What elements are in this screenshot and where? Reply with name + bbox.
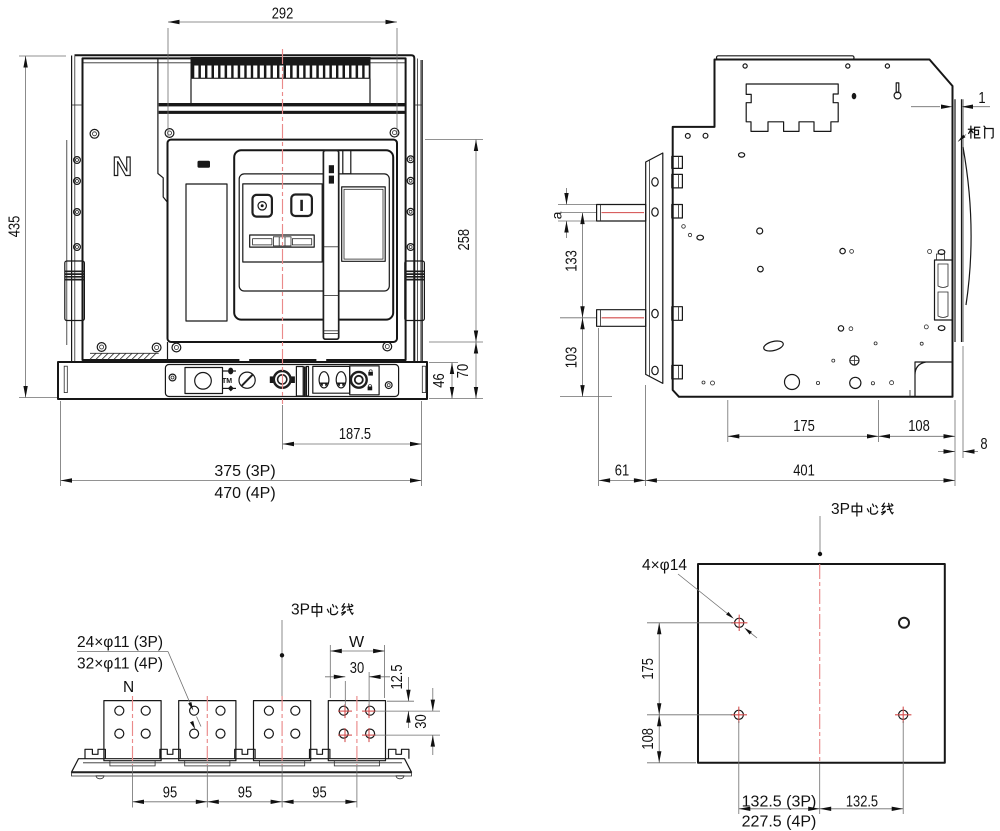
svg-text:375 (3P): 375 (3P) <box>214 463 275 480</box>
svg-text:12.5: 12.5 <box>389 664 406 689</box>
svg-text:95: 95 <box>312 784 326 801</box>
svg-text:TM: TM <box>222 378 232 385</box>
svg-text:187.5: 187.5 <box>339 426 371 443</box>
svg-text:N: N <box>113 152 133 182</box>
svg-text:103: 103 <box>564 347 581 369</box>
svg-text:95: 95 <box>163 784 177 801</box>
svg-text:30: 30 <box>413 714 430 728</box>
svg-text:70: 70 <box>455 364 472 378</box>
svg-text:133: 133 <box>564 250 581 272</box>
svg-text:46: 46 <box>431 373 448 387</box>
svg-text:4×φ14: 4×φ14 <box>642 557 687 574</box>
svg-text:3P: 3P <box>831 501 850 518</box>
svg-text:470 (4P): 470 (4P) <box>214 485 275 502</box>
svg-text:24×φ11 (3P): 24×φ11 (3P) <box>77 634 163 651</box>
svg-text:1: 1 <box>978 90 985 107</box>
svg-text:W: W <box>349 634 365 651</box>
svg-text:108: 108 <box>640 728 657 750</box>
svg-text:3P: 3P <box>291 602 310 619</box>
svg-text:292: 292 <box>272 5 294 22</box>
svg-text:227.5 (4P): 227.5 (4P) <box>742 813 817 830</box>
svg-text:32×φ11 (4P): 32×φ11 (4P) <box>77 656 163 673</box>
svg-text:175: 175 <box>793 418 815 435</box>
svg-text:61: 61 <box>615 462 629 479</box>
svg-text:401: 401 <box>793 462 815 479</box>
svg-text:175: 175 <box>640 658 657 680</box>
svg-text:108: 108 <box>908 418 930 435</box>
svg-text:132.5 (3P): 132.5 (3P) <box>742 793 817 810</box>
svg-text:95: 95 <box>238 784 252 801</box>
svg-text:30: 30 <box>350 660 364 677</box>
svg-text:8: 8 <box>980 436 987 453</box>
svg-text:132.5: 132.5 <box>846 793 878 810</box>
svg-text:435: 435 <box>7 216 24 238</box>
svg-text:N: N <box>123 679 134 696</box>
svg-text:258: 258 <box>456 229 473 251</box>
